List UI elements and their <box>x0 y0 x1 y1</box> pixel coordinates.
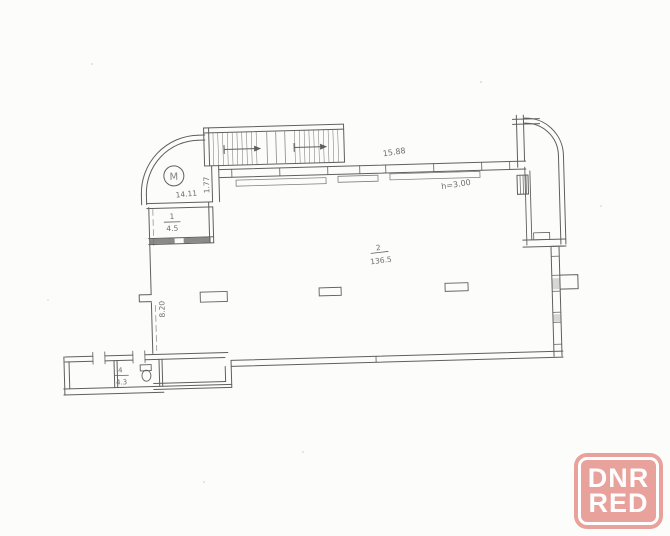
watermark-line2: RED <box>588 491 650 516</box>
interior-columns <box>200 283 468 302</box>
ceiling-height-label: h=3.00 <box>441 178 472 191</box>
dim-label-top-width: 15.88 <box>382 146 406 158</box>
floor-plan-drawing: 14.11 1.77 15.88 h=3.00 8.20 M 1 4.5 2 1… <box>0 0 670 536</box>
toilet-fixture <box>140 365 151 382</box>
right-exterior-wall <box>551 246 580 357</box>
duct-shaft <box>517 175 529 194</box>
room-number-main-hall: 2 <box>375 243 381 253</box>
top-exterior-wall <box>219 161 526 187</box>
left-wall <box>137 207 157 353</box>
top-right-corner-walls <box>512 114 566 247</box>
room-number-vestibule: 1 <box>169 212 174 221</box>
door-jamb-ticks <box>93 351 145 364</box>
wall-notch <box>139 295 151 302</box>
room-area-vestibule: 4.5 <box>166 224 178 233</box>
scan-noise <box>47 63 602 483</box>
wall-pier-bump <box>560 275 578 289</box>
watermark-text: DNR RED <box>588 466 650 516</box>
bottom-exterior-wall <box>153 351 564 389</box>
dim-label-vestibule-width: 14.11 <box>175 189 197 200</box>
room-area-main-hall: 136.5 <box>370 255 393 267</box>
stair-side-wall <box>212 166 220 202</box>
room-number-wc: 4 <box>118 366 123 374</box>
staircase <box>204 124 345 166</box>
column <box>200 291 227 302</box>
column <box>319 287 341 296</box>
dim-label-left-height: 8.20 <box>157 301 166 318</box>
survey-mark-letter: M <box>169 172 178 183</box>
column <box>445 283 468 292</box>
room-area-wc: 4.3 <box>116 378 127 386</box>
scanned-floor-plan-page: 14.11 1.77 15.88 h=3.00 8.20 M 1 4.5 2 1… <box>0 0 670 536</box>
vestibule-room-walls <box>147 202 214 245</box>
dnr-red-watermark: DNR RED <box>574 453 663 529</box>
dim-label-stair-wall: 1.77 <box>202 176 211 193</box>
window-sill <box>534 232 550 239</box>
